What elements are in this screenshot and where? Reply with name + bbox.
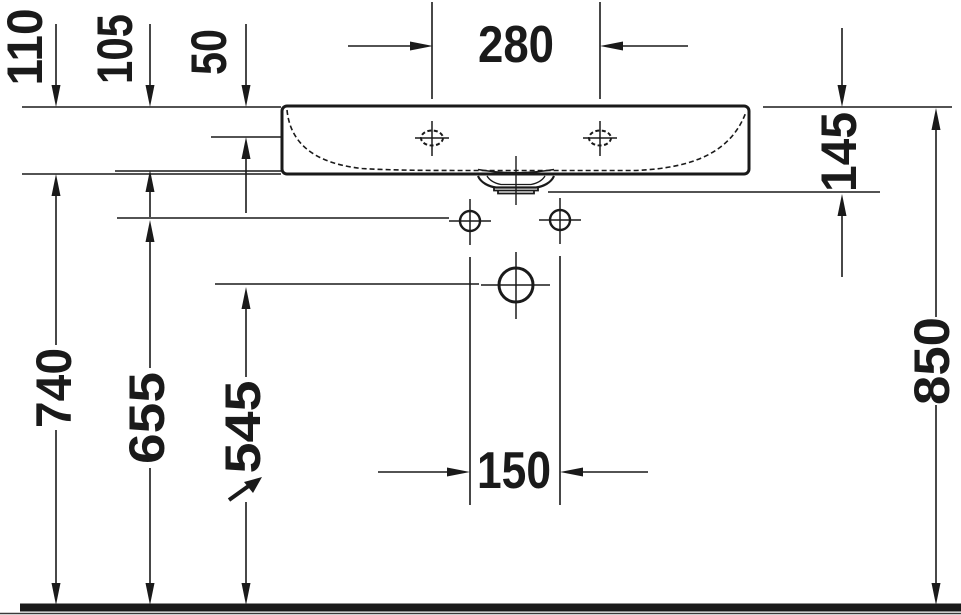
dim-label-850: 850 xyxy=(904,317,960,405)
dim-label-545: 545 xyxy=(215,381,271,474)
arrow-right-icon xyxy=(410,42,433,51)
dim-label-280: 280 xyxy=(478,16,554,74)
arrow-down-icon xyxy=(52,85,61,107)
arrow-left-icon xyxy=(600,42,623,51)
arrow-down-icon xyxy=(146,583,155,605)
arrow-up-icon xyxy=(52,174,61,196)
arrow-up-icon xyxy=(146,220,155,242)
drain-outlet-hole xyxy=(481,252,550,319)
dim-label-105: 105 xyxy=(87,14,143,84)
dim-label-655: 655 xyxy=(119,372,175,464)
leader-arrow-shaft xyxy=(229,485,250,500)
dim-label-145: 145 xyxy=(811,112,867,192)
arrow-down-icon xyxy=(932,583,941,605)
drawing-canvas: 280 150 110 105 50 740 655 545 145 850 xyxy=(0,0,961,615)
fixing-hole-right xyxy=(539,198,581,244)
floor xyxy=(0,608,961,614)
fixing-hole-left xyxy=(449,199,491,245)
arrow-down-icon xyxy=(242,583,251,605)
arrow-down-icon xyxy=(242,85,251,107)
arrow-up-icon xyxy=(838,194,847,216)
arrow-up-icon xyxy=(932,108,941,130)
dim-label-110: 110 xyxy=(0,9,53,86)
arrow-left-icon xyxy=(560,468,583,477)
arrow-right-icon xyxy=(447,468,470,477)
arrow-down-icon xyxy=(146,85,155,107)
dim-label-150: 150 xyxy=(477,442,551,500)
leader-arrow-head xyxy=(244,477,262,493)
arrow-down-icon xyxy=(838,85,847,107)
dimension-labels: 280 150 110 105 50 740 655 545 145 850 xyxy=(0,9,960,501)
washbasin-front-view xyxy=(282,106,749,205)
arrow-down-icon xyxy=(52,583,61,605)
leader-arrow-northeast-icon xyxy=(229,477,262,500)
washbasin-dimension-drawing: 280 150 110 105 50 740 655 545 145 850 xyxy=(0,0,961,615)
arrow-up-icon xyxy=(242,137,251,159)
dim-label-50: 50 xyxy=(181,29,237,75)
arrow-up-icon xyxy=(242,287,251,309)
dim-label-740: 740 xyxy=(26,348,82,428)
